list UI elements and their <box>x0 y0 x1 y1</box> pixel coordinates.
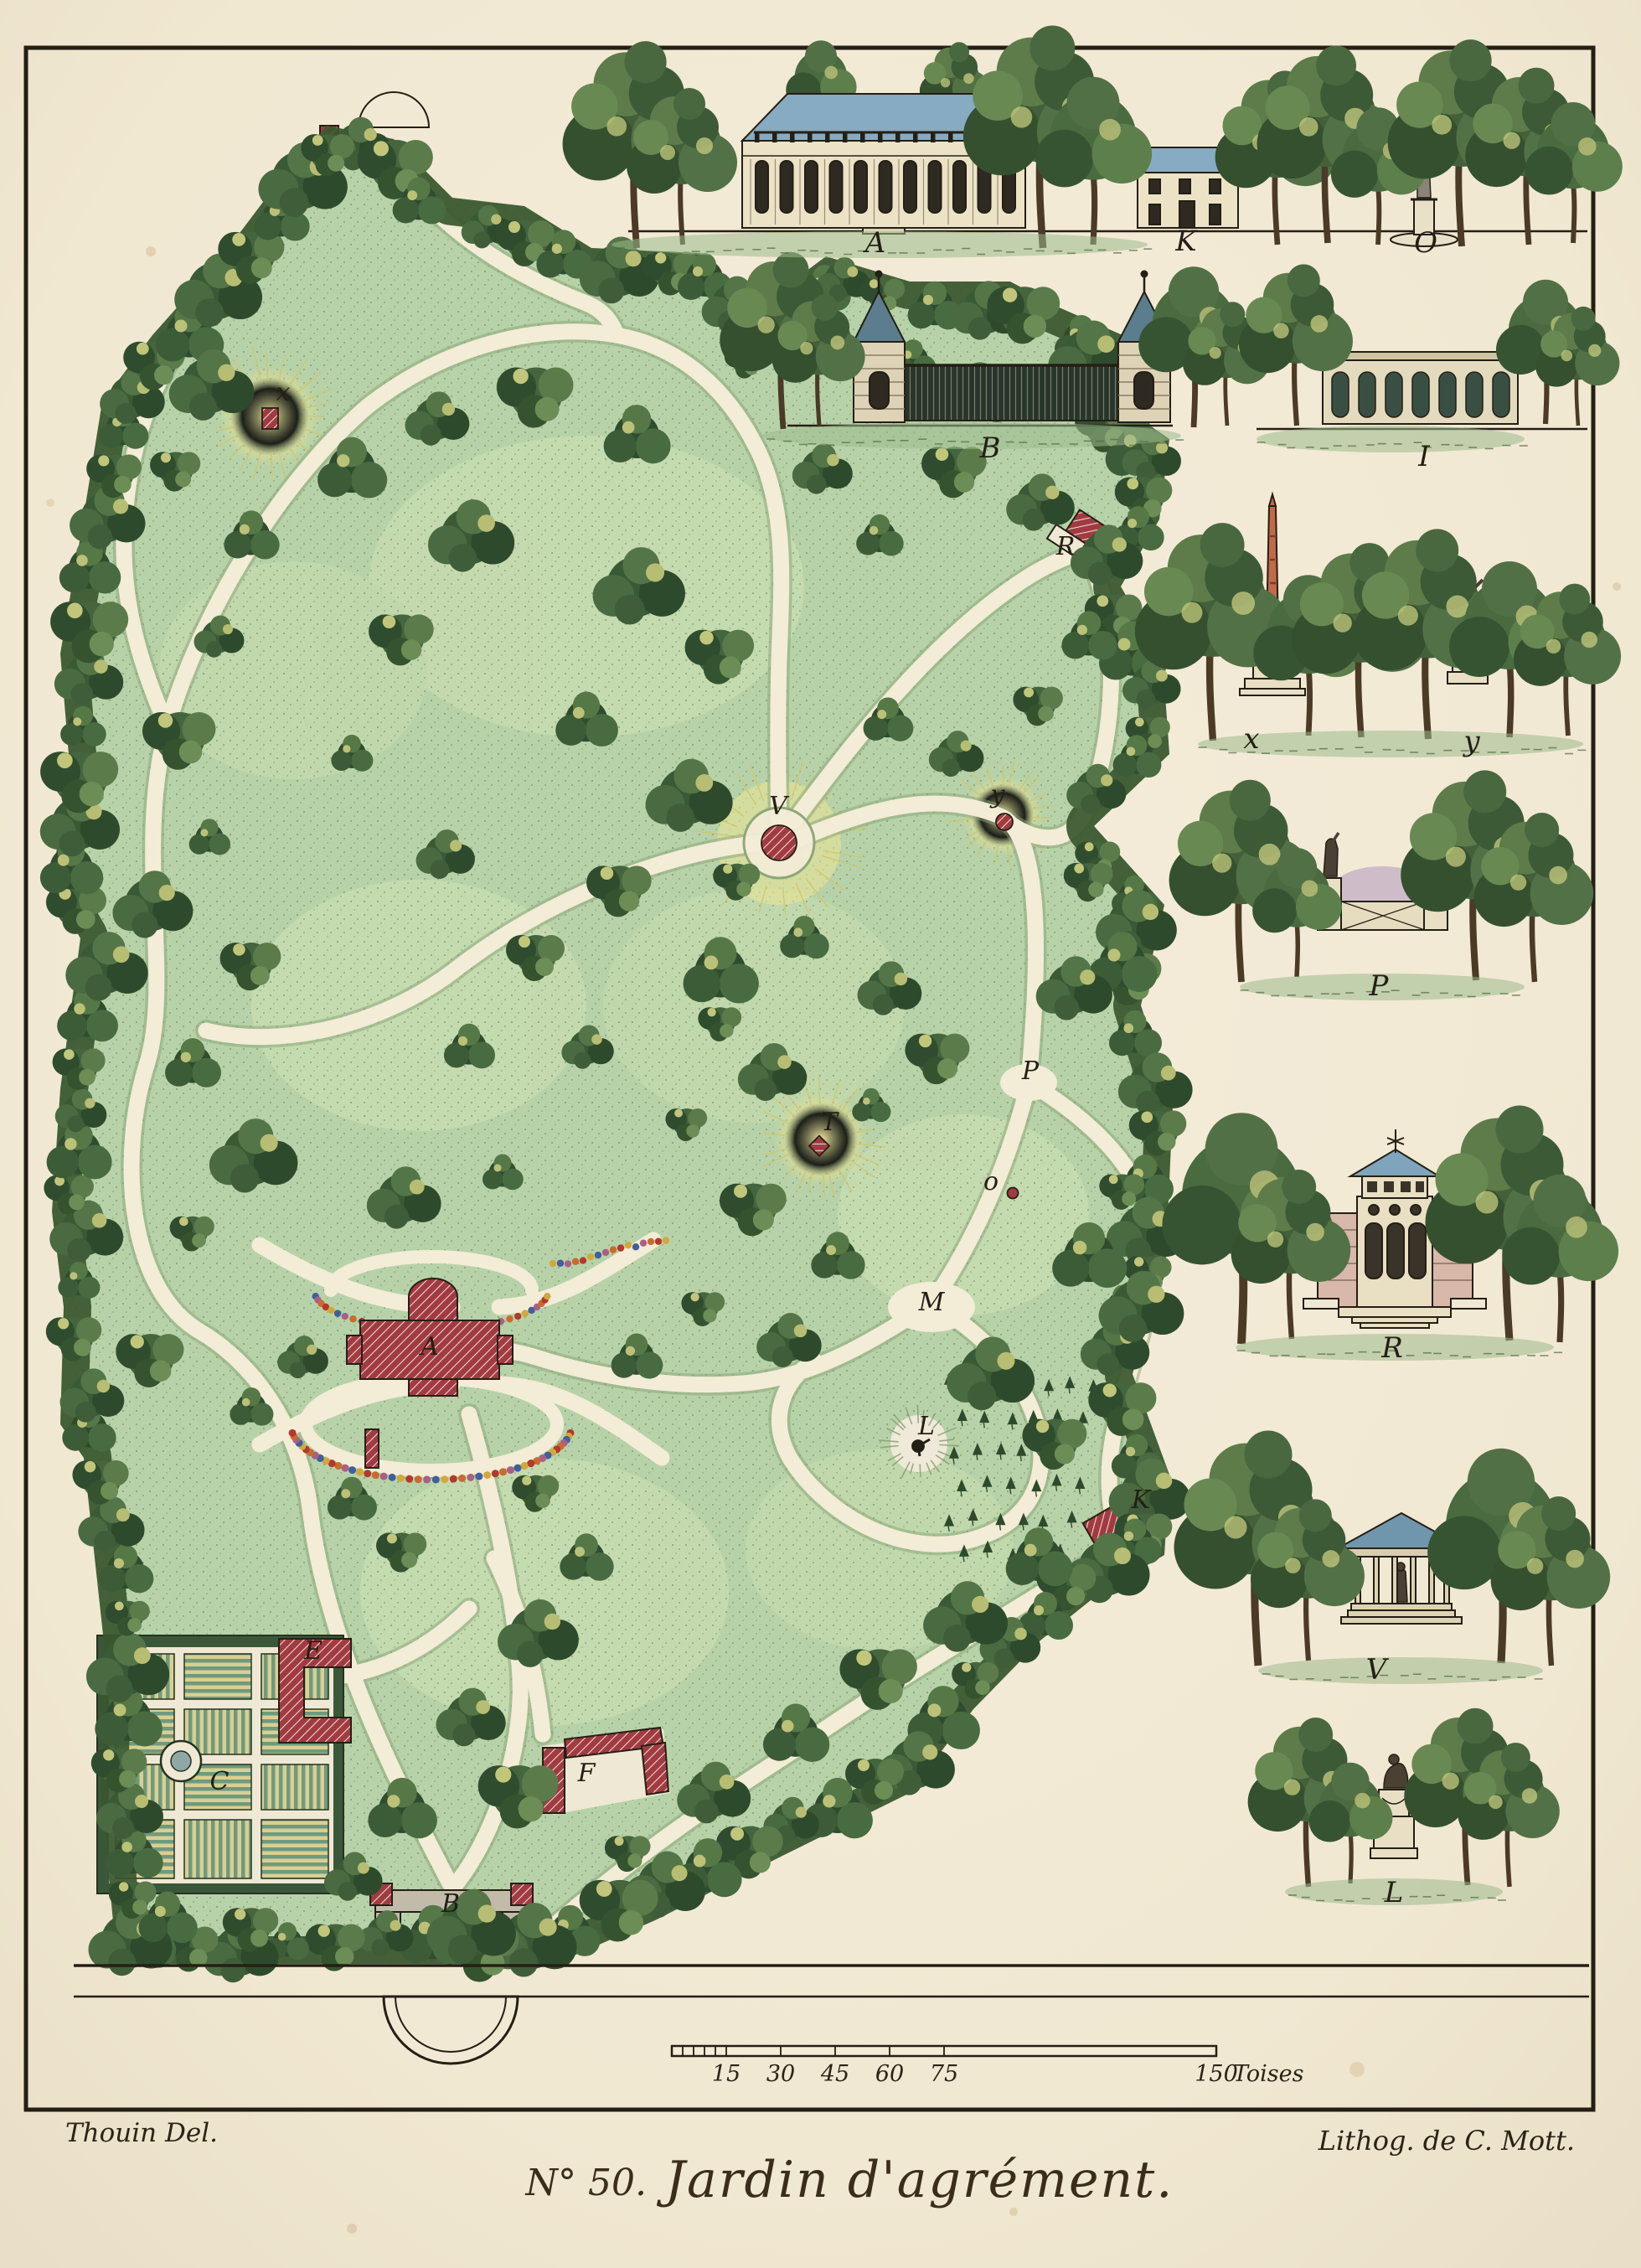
scale-tick-label: 15 <box>712 2061 741 2087</box>
vignette-label-A: A <box>863 226 886 260</box>
statue-marker-y <box>996 814 1013 830</box>
plan-marker-V: V <box>769 792 790 821</box>
lithographer-credit: Lithog. de C. Mott. <box>1318 2125 1575 2157</box>
plan-marker-F: F <box>577 1759 596 1788</box>
ground-hatch <box>762 422 1184 449</box>
vignette-label-y: y <box>1462 725 1480 758</box>
vignette-label-K: K <box>1174 225 1199 258</box>
plan-marker-o: o <box>983 1167 999 1196</box>
plan-marker-M: M <box>918 1288 946 1317</box>
small-marker-o <box>1008 1188 1019 1199</box>
scale-tick-label: 45 <box>820 2061 849 2087</box>
vignette-label-B: B <box>979 431 1001 465</box>
vegetable-bed <box>261 1820 328 1878</box>
plan-marker-L: L <box>917 1412 935 1441</box>
plan-marker-B: B <box>441 1889 460 1919</box>
vegetable-bed <box>261 1764 328 1810</box>
plate-number: N° 50. <box>525 2162 647 2204</box>
outbuilding <box>365 1429 379 1468</box>
scale-tick-label: 60 <box>875 2061 904 2087</box>
vignette-label-L: L <box>1384 1876 1404 1909</box>
vignette-label-x: x <box>1243 722 1259 756</box>
vegetable-bed <box>184 1820 251 1878</box>
plan-marker-R: R <box>1055 532 1076 561</box>
plan-marker-A: A <box>418 1332 439 1361</box>
vegetable-bed <box>184 1654 251 1699</box>
basin <box>171 1751 191 1771</box>
vignette-label-P: P <box>1369 969 1390 1003</box>
ground-hatch <box>1258 1657 1543 1684</box>
plan-marker-T: T <box>821 1108 839 1137</box>
vignette-label-O: O <box>1414 226 1437 260</box>
vignette-label-V: V <box>1366 1653 1390 1687</box>
plan-marker-x: x <box>276 378 291 407</box>
plan-marker-E: E <box>303 1636 323 1666</box>
obelisk-marker-x <box>262 408 278 429</box>
scale-tick-label: 30 <box>766 2061 795 2087</box>
plan-marker-C: C <box>210 1767 230 1796</box>
lithograph-sheet: xVyTPoMLKRAECFBG <box>0 0 1641 2268</box>
vignette-label-I: I <box>1417 440 1430 473</box>
vignette-label-R: R <box>1380 1331 1403 1365</box>
plan-marker-P: P <box>1021 1057 1040 1086</box>
plate-title: Jardin d'agrément. <box>656 2151 1174 2209</box>
lithograph-plate: xVyTPoMLKRAECFBG <box>0 0 1641 2268</box>
scale-tick-label: 150 <box>1195 2061 1238 2087</box>
artist-credit: Thouin Del. <box>65 2118 218 2148</box>
scale-tick-label: 75 <box>930 2061 958 2087</box>
plan-marker-K: K <box>1131 1485 1152 1515</box>
scale-unit-label: Toises <box>1233 2061 1304 2087</box>
rotunda-marker-V <box>761 825 797 860</box>
plan-marker-y: y <box>989 780 1006 809</box>
